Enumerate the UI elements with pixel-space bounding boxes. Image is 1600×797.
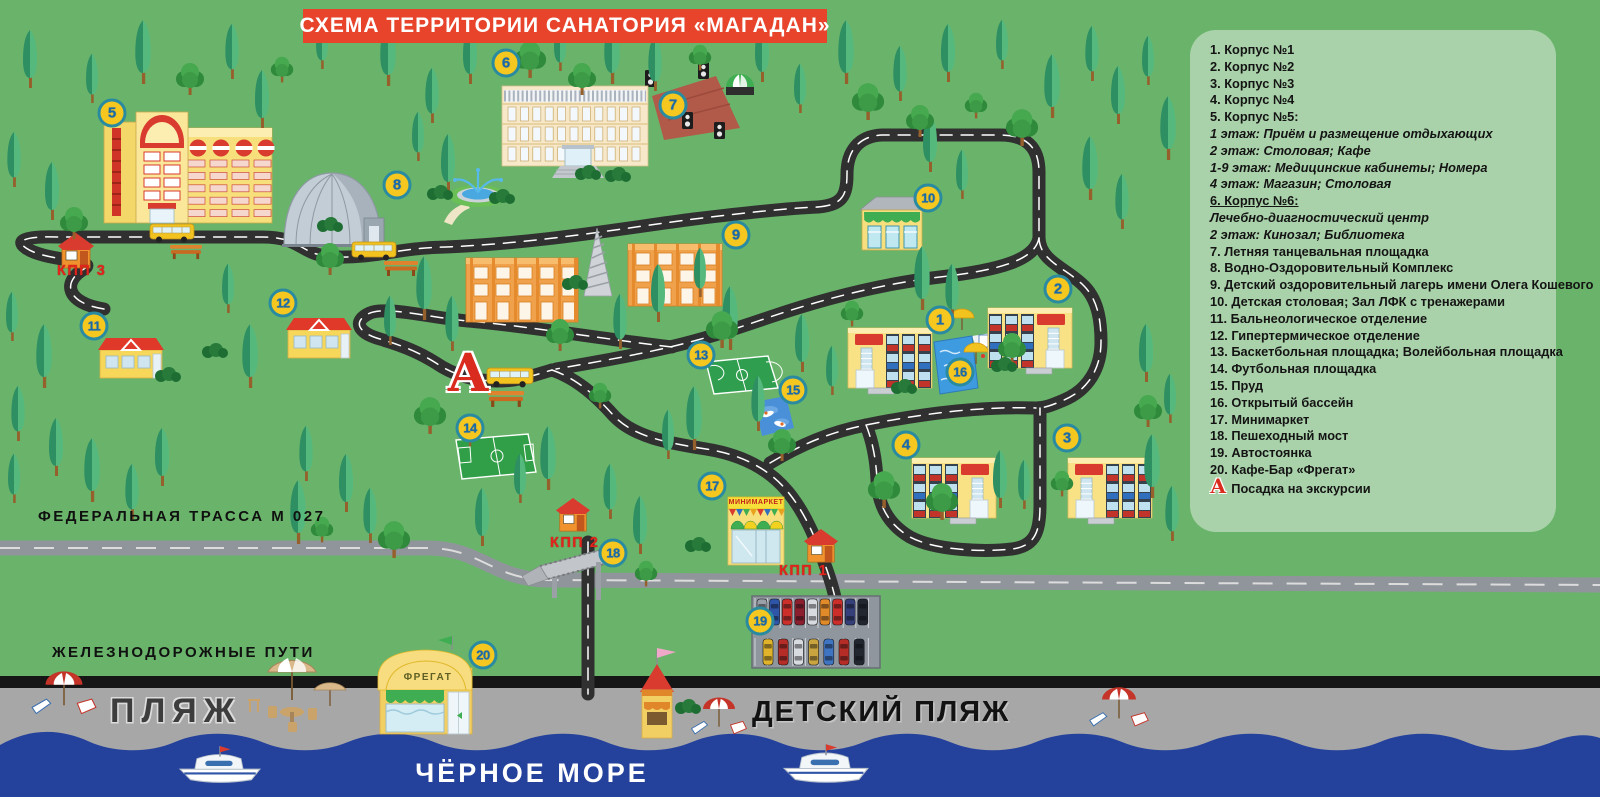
parked-car xyxy=(778,639,788,665)
round-tree xyxy=(852,83,884,120)
parked-car xyxy=(839,639,849,665)
legend-item: 4 этаж: Магазин; Столовая xyxy=(1210,176,1540,193)
map-marker-2: 2 xyxy=(1044,275,1073,304)
cypress-tree xyxy=(255,70,269,128)
legend-item: 17. Минимаркет xyxy=(1210,412,1540,429)
cypress-tree xyxy=(1115,174,1128,229)
cypress-tree xyxy=(1160,96,1175,160)
round-tree xyxy=(414,397,446,434)
checkpoint-3-label: КПП 3 xyxy=(57,263,106,279)
cypress-tree xyxy=(8,454,20,503)
map-marker-1: 1 xyxy=(926,306,955,335)
map-marker-5: 5 xyxy=(98,99,127,128)
parked-car xyxy=(833,599,843,625)
legend-item: 15. Пруд xyxy=(1210,378,1540,395)
cypress-tree xyxy=(339,454,353,512)
minimarket-sign: МИНИМАРКЕТ xyxy=(728,499,784,506)
map-marker-9: 9 xyxy=(722,221,751,250)
parked-car xyxy=(854,639,864,665)
cypress-tree xyxy=(795,314,809,372)
cypress-tree xyxy=(941,24,955,82)
map-marker-17: 17 xyxy=(698,472,727,501)
cypress-tree xyxy=(299,426,312,481)
legend-item: 2 этаж: Кинозал; Библиотека xyxy=(1210,227,1540,244)
map-title-banner: СХЕМА ТЕРРИТОРИИ САНАТОРИЯ «МАГАДАН» xyxy=(303,9,827,43)
cypress-tree xyxy=(23,30,37,88)
cypress-tree xyxy=(893,46,906,101)
map-marker-20: 20 xyxy=(469,641,498,670)
bush xyxy=(605,167,631,182)
cypress-tree xyxy=(1111,66,1125,124)
map-marker-10: 10 xyxy=(914,184,943,213)
cypress-tree xyxy=(441,134,455,192)
railway-label: ЖЕЛЕЗНОДОРОЖНЫЕ ПУТИ xyxy=(52,644,315,661)
camp-building-west xyxy=(466,258,578,322)
map-marker-4: 4 xyxy=(892,431,921,460)
bench xyxy=(384,261,418,276)
legend-item: 4. Корпус №4 xyxy=(1210,92,1540,109)
parked-car xyxy=(807,599,817,625)
map-title: СХЕМА ТЕРРИТОРИИ САНАТОРИЯ «МАГАДАН» xyxy=(299,14,830,38)
round-tree xyxy=(965,93,987,119)
legend-item: 1. Корпус №1 xyxy=(1210,42,1540,59)
cypress-tree xyxy=(45,162,59,220)
parked-car xyxy=(858,599,868,625)
camp-building-east xyxy=(628,244,722,306)
round-tree xyxy=(841,301,863,327)
cypress-tree xyxy=(49,418,63,476)
legend-item: 6. Корпус №6: xyxy=(1210,193,1540,210)
resort-block-building xyxy=(848,328,932,394)
water-complex-dome xyxy=(282,173,384,247)
legend-item: 12. Гипертермическое отделение xyxy=(1210,328,1540,345)
parked-car xyxy=(820,599,830,625)
boarding-a-icon: А xyxy=(1210,479,1226,493)
cypress-tree xyxy=(225,24,238,79)
map-marker-11: 11 xyxy=(80,312,109,341)
round-tree xyxy=(546,319,574,351)
map-marker-19: 19 xyxy=(746,607,775,636)
cypress-tree xyxy=(363,488,376,543)
legend-item: 16. Открытый бассейн xyxy=(1210,395,1540,412)
kids-beach-label: ДЕТСКИЙ ПЛЯЖ xyxy=(752,696,1010,729)
map-marker-3: 3 xyxy=(1053,424,1082,453)
cypress-tree xyxy=(222,264,234,313)
legend-item: 7. Летняя танцевальная площадка xyxy=(1210,244,1540,261)
legend-item: 9. Детский оздоровительный лагерь имени … xyxy=(1210,277,1540,294)
stage-tent xyxy=(726,74,754,95)
legend-item: 1-9 этаж: Медицинские кабинеты; Номера xyxy=(1210,160,1540,177)
basketball-court xyxy=(706,356,782,394)
sanatorium-map: СХЕМА ТЕРРИТОРИИ САНАТОРИЯ «МАГАДАН» 1. … xyxy=(0,0,1600,797)
legend-item: 2 этаж: Столовая; Кафе xyxy=(1210,143,1540,160)
checkpoint-1-label: КПП 1 xyxy=(779,563,828,579)
map-marker-16: 16 xyxy=(946,358,975,387)
cypress-tree xyxy=(6,292,18,341)
building-korpus-6 xyxy=(502,86,648,178)
cypress-tree xyxy=(412,112,424,161)
legend-item: 8. Водно-Оздоровительный Комплекс xyxy=(1210,260,1540,277)
bench xyxy=(488,391,524,407)
cypress-tree xyxy=(86,54,98,103)
map-marker-18: 18 xyxy=(599,539,628,568)
cypress-tree xyxy=(603,464,616,519)
legend-item: 3. Корпус №3 xyxy=(1210,76,1540,93)
cypress-tree xyxy=(662,410,674,459)
cypress-tree xyxy=(7,132,20,187)
beach-label: ПЛЯЖ xyxy=(110,692,241,731)
parked-car xyxy=(782,599,792,625)
cypress-tree xyxy=(1082,136,1097,200)
cypress-tree xyxy=(84,438,99,502)
legend-item-label: Посадка на экскурсии xyxy=(1231,481,1370,496)
legend-item: 14. Футбольная площадка xyxy=(1210,361,1540,378)
fregat-sign: ФРЕГАТ xyxy=(399,672,457,683)
cypress-tree xyxy=(794,64,806,113)
cypress-tree xyxy=(633,496,647,554)
black-sea-label: ЧЁРНОЕ МОРЕ xyxy=(382,758,682,789)
round-tree xyxy=(1134,395,1162,427)
map-marker-15: 15 xyxy=(779,376,808,405)
parked-car xyxy=(793,639,803,665)
cypress-tree xyxy=(425,68,438,123)
cottage-building xyxy=(98,338,164,378)
map-marker-8: 8 xyxy=(383,171,412,200)
map-marker-14: 14 xyxy=(456,414,485,443)
map-marker-7: 7 xyxy=(659,91,688,120)
parked-car xyxy=(795,599,805,625)
cypress-tree xyxy=(475,488,489,546)
cypress-tree xyxy=(956,150,968,199)
parked-car xyxy=(763,639,773,665)
parked-car xyxy=(845,599,855,625)
cypress-tree xyxy=(914,246,929,310)
excursion-boarding-marker: А xyxy=(447,348,489,400)
cypress-tree xyxy=(1165,486,1178,541)
cypress-tree xyxy=(1139,324,1153,382)
legend-item: 11. Бальнеологическое отделение xyxy=(1210,311,1540,328)
legend-item: АПосадка на экскурсии xyxy=(1210,479,1540,498)
bench xyxy=(170,245,202,259)
cypress-tree xyxy=(135,20,150,84)
cypress-tree xyxy=(11,386,24,441)
cypress-tree xyxy=(1018,460,1030,509)
bush xyxy=(202,343,228,358)
cypress-tree xyxy=(155,428,169,486)
legend-item: 20. Кафе-Бар «Фрегат» xyxy=(1210,462,1540,479)
legend-panel: 1. Корпус №12. Корпус №23. Корпус №34. К… xyxy=(1190,30,1556,532)
legend-item: 18. Пешеходный мост xyxy=(1210,428,1540,445)
cypress-tree xyxy=(1044,54,1059,118)
cypress-tree xyxy=(838,20,853,84)
round-tree xyxy=(176,63,204,95)
railway-track xyxy=(0,676,1600,688)
legend-item: 2. Корпус №2 xyxy=(1210,59,1540,76)
building-korpus-5 xyxy=(104,112,275,223)
checkpoint-2-label: КПП 2 xyxy=(550,535,599,551)
legend-item: 13. Баскетбольная площадка; Волейбольная… xyxy=(1210,344,1540,361)
cypress-tree xyxy=(996,20,1008,69)
federal-highway-label: ФЕДЕРАЛЬНАЯ ТРАССА М 027 xyxy=(38,508,325,525)
cypress-tree xyxy=(242,324,257,388)
cypress-tree xyxy=(36,324,51,388)
round-tree xyxy=(316,243,344,275)
map-marker-6: 6 xyxy=(492,49,521,78)
cypress-tree xyxy=(1142,36,1154,85)
checkpoint-2-hut xyxy=(556,498,590,531)
legend-item: Лечебно-диагностический центр xyxy=(1210,210,1540,227)
cypress-tree xyxy=(1085,26,1098,81)
parked-car xyxy=(824,639,834,665)
map-marker-12: 12 xyxy=(269,289,298,318)
resort-block-building xyxy=(912,458,996,524)
legend-item: 1 этаж: Приём и размещение отдыхающих xyxy=(1210,126,1540,143)
bush xyxy=(685,537,711,552)
beach-kiosk xyxy=(640,648,676,738)
fregat-cafe-building xyxy=(378,636,472,734)
parking-lot xyxy=(752,596,880,668)
minimarket-building xyxy=(728,497,785,565)
resort-block-building xyxy=(1068,458,1152,524)
parked-car xyxy=(809,639,819,665)
cottage-building xyxy=(286,318,352,358)
legend-item: 10. Детская столовая; Зал ЛФК с тренажер… xyxy=(1210,294,1540,311)
cypress-tree xyxy=(826,346,838,395)
round-tree xyxy=(271,57,293,83)
map-marker-13: 13 xyxy=(687,341,716,370)
cypress-tree xyxy=(1164,374,1176,423)
legend-item: 19. Автостоянка xyxy=(1210,445,1540,462)
cypress-tree xyxy=(540,426,555,490)
legend-item: 5. Корпус №5: xyxy=(1210,109,1540,126)
